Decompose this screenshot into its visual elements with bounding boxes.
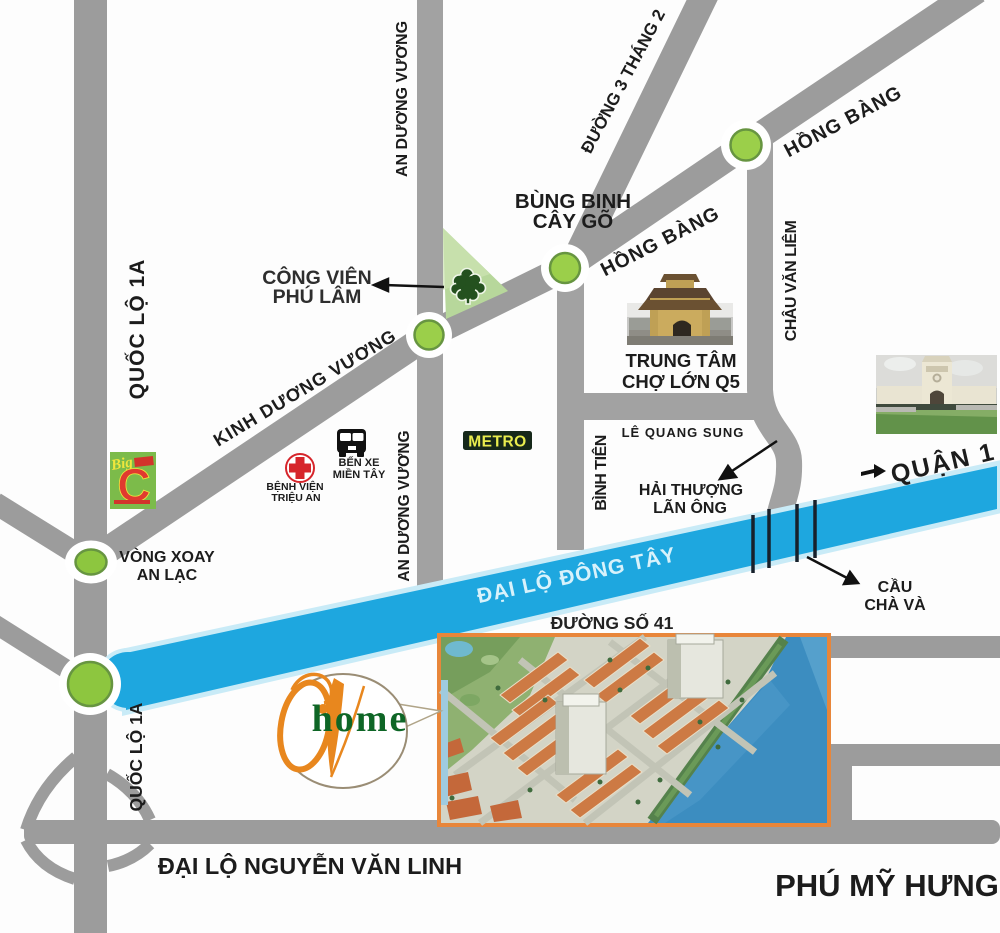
svg-text:TRIỆU AN: TRIỆU AN — [271, 491, 320, 504]
svg-text:BÌNH TIÊN: BÌNH TIÊN — [591, 435, 610, 511]
svg-text:ĐẠI LỘ NGUYỄN VĂN LINH: ĐẠI LỘ NGUYỄN VĂN LINH — [158, 851, 462, 879]
svg-text:AN LẠC: AN LẠC — [137, 567, 198, 584]
svg-text:CÂY GÕ: CÂY GÕ — [533, 209, 614, 233]
svg-text:CẦU: CẦU — [878, 577, 913, 596]
svg-text:METRO: METRO — [468, 434, 526, 451]
svg-text:CHỢ LỚN Q5: CHỢ LỚN Q5 — [622, 371, 740, 392]
svg-text:PHÚ LÂM: PHÚ LÂM — [273, 284, 362, 308]
svg-text:ĐƯỜNG SỐ 41: ĐƯỜNG SỐ 41 — [551, 612, 674, 633]
svg-text:VÒNG XOAY: VÒNG XOAY — [119, 547, 215, 566]
svg-text:QUỐC LỘ 1A: QUỐC LỘ 1A — [125, 702, 146, 811]
svg-text:HẢI THƯỢNG: HẢI THƯỢNG — [639, 480, 743, 499]
svg-text:AN DƯƠNG VƯƠNG: AN DƯƠNG VƯƠNG — [396, 430, 413, 581]
svg-text:PHÚ MỸ HƯNG: PHÚ MỸ HƯNG — [775, 867, 999, 903]
svg-text:AN DƯƠNG VƯƠNG: AN DƯƠNG VƯƠNG — [394, 21, 411, 177]
svg-text:CHÂU VĂN LIÊM: CHÂU VĂN LIÊM — [781, 221, 800, 342]
svg-text:LÊ QUANG SUNG: LÊ QUANG SUNG — [622, 425, 745, 440]
svg-text:home: home — [312, 698, 409, 740]
svg-text:TRUNG TÂM: TRUNG TÂM — [626, 350, 737, 371]
svg-text:LÃN ÔNG: LÃN ÔNG — [653, 497, 727, 517]
svg-text:CHÀ VÀ: CHÀ VÀ — [864, 595, 926, 614]
svg-text:QUỐC LỘ 1A: QUỐC LỘ 1A — [125, 259, 149, 400]
svg-text:MIỀN TÂY: MIỀN TÂY — [333, 468, 386, 481]
svg-text:BẾN XE: BẾN XE — [339, 456, 380, 469]
